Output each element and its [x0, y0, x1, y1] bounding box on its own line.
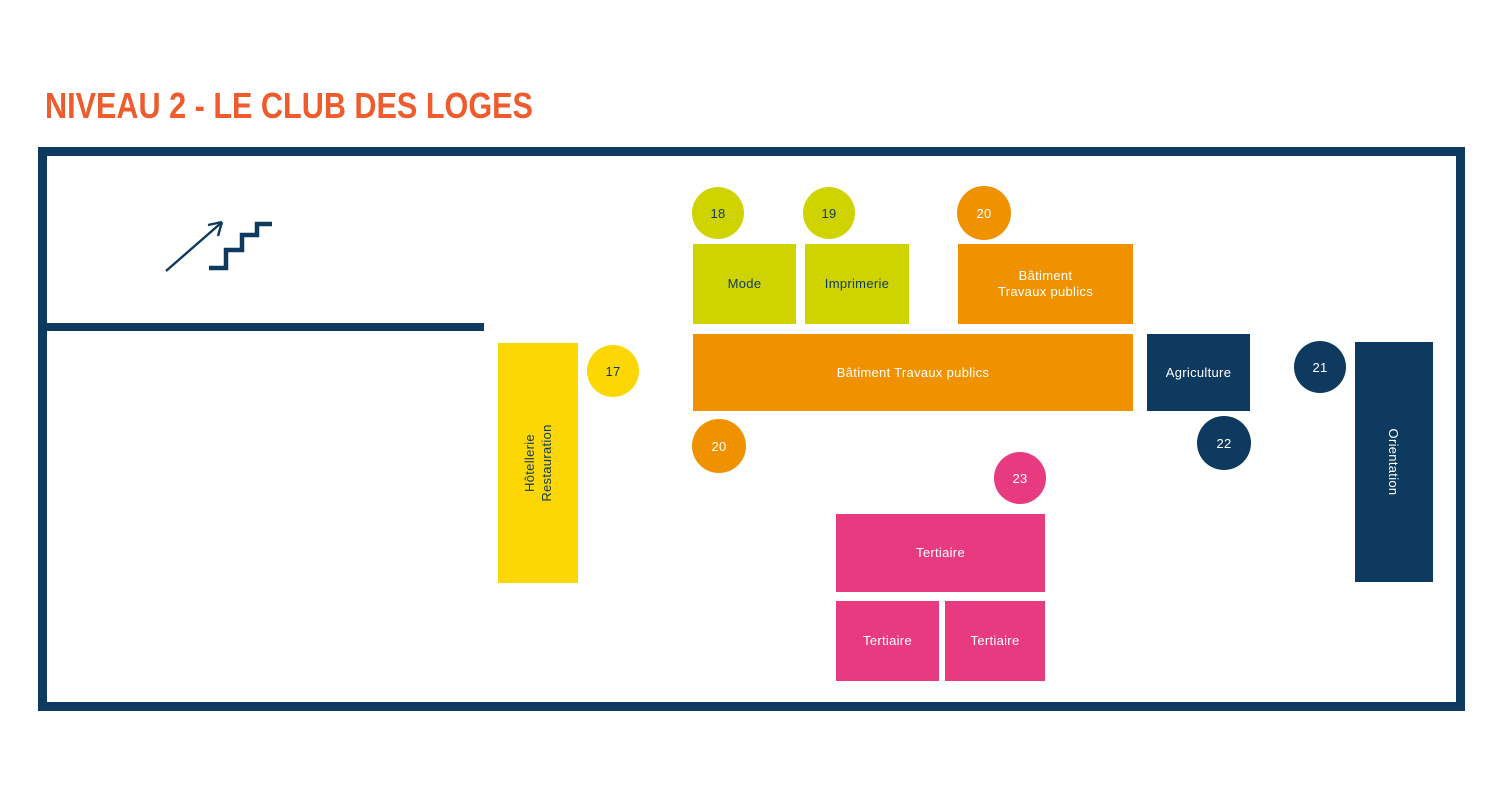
- badge-20-2: 20: [692, 419, 746, 473]
- room-agriculture: Agriculture: [1147, 334, 1250, 411]
- interior-wall: [40, 323, 484, 331]
- stairs-up-icon: [160, 208, 280, 278]
- room-label-line: Tertiaire: [916, 545, 965, 561]
- room-label: Agriculture: [1147, 334, 1250, 411]
- badge-number: 17: [605, 364, 620, 379]
- room-label-line: Hôtellerie: [521, 434, 538, 492]
- room-label-line: Tertiaire: [863, 633, 912, 649]
- room-label: Imprimerie: [805, 244, 909, 324]
- room-label-line: Agriculture: [1166, 365, 1231, 381]
- page-title: NIVEAU 2 - LE CLUB DES LOGES: [45, 85, 533, 127]
- floor-plan-page: NIVEAU 2 - LE CLUB DES LOGES ModeImprime…: [0, 0, 1500, 800]
- room-label-line: Restauration: [538, 424, 555, 501]
- room-label-line: Orientation: [1386, 429, 1403, 496]
- badge-number: 20: [711, 439, 726, 454]
- room-label-line: Tertiaire: [971, 633, 1020, 649]
- room-label-line: Imprimerie: [825, 276, 889, 292]
- room-mode: Mode: [693, 244, 796, 324]
- room-label: Tertiaire: [836, 601, 939, 681]
- badge-number: 20: [976, 206, 991, 221]
- badge-21: 21: [1294, 341, 1346, 393]
- room-tertiaire-left: Tertiaire: [836, 601, 939, 681]
- room-label: Tertiaire: [945, 601, 1045, 681]
- room-label-line: Bâtiment Travaux publics: [837, 365, 989, 381]
- room-label: Tertiaire: [836, 514, 1045, 592]
- room-label-line: Bâtiment: [1019, 268, 1073, 284]
- badge-number: 18: [710, 206, 725, 221]
- room-tertiaire-main: Tertiaire: [836, 514, 1045, 592]
- room-tertiaire-right: Tertiaire: [945, 601, 1045, 681]
- room-label: Orientation: [1355, 342, 1433, 582]
- room-label-line: Travaux publics: [998, 284, 1093, 300]
- badge-18: 18: [692, 187, 744, 239]
- badge-number: 23: [1012, 471, 1027, 486]
- badge-number: 22: [1216, 436, 1231, 451]
- room-label: Bâtiment Travaux publics: [693, 334, 1133, 411]
- badge-23: 23: [994, 452, 1046, 504]
- room-batiment-travaux-publics-main: Bâtiment Travaux publics: [693, 334, 1133, 411]
- room-imprimerie: Imprimerie: [805, 244, 909, 324]
- badge-22: 22: [1197, 416, 1251, 470]
- badge-19: 19: [803, 187, 855, 239]
- room-batiment-travaux-publics-upper: BâtimentTravaux publics: [958, 244, 1133, 324]
- room-label: Mode: [693, 244, 796, 324]
- room-label: BâtimentTravaux publics: [958, 244, 1133, 324]
- badge-20: 20: [957, 186, 1011, 240]
- badge-number: 19: [821, 206, 836, 221]
- badge-17: 17: [587, 345, 639, 397]
- room-orientation: Orientation: [1355, 342, 1433, 582]
- room-label-line: Mode: [728, 276, 762, 292]
- room-label: HôtellerieRestauration: [498, 343, 578, 583]
- room-hotellerie-restauration: HôtellerieRestauration: [498, 343, 578, 583]
- badge-number: 21: [1312, 360, 1327, 375]
